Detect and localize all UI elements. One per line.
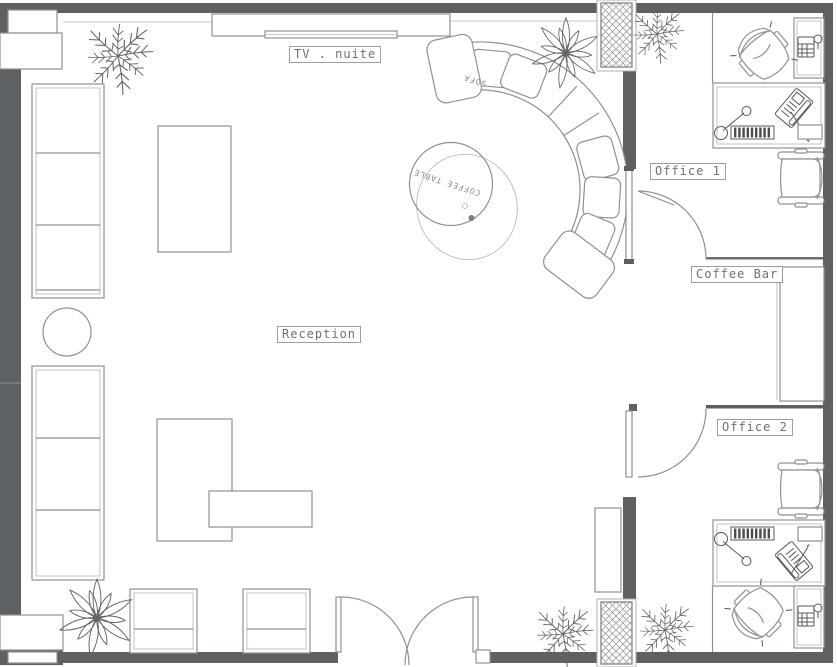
wall-sofa-lower [32,366,104,580]
exterior-walls [0,3,833,665]
table-detail [469,215,475,221]
tv-console [212,14,450,38]
label-tv-unit: TV . nuite [289,46,381,63]
door-swing-arc [638,409,706,477]
keyboard-icon [731,527,774,540]
door-swing-arc [341,597,409,665]
glass-partition [626,170,632,262]
side-chair [778,460,824,518]
office1-door [624,166,706,264]
partition-office2 [706,405,823,409]
sofa-cushion [583,176,621,218]
office1-desk [713,83,825,148]
side-chair [778,149,824,207]
door-leaf-right [473,597,478,652]
office1 [713,13,826,207]
fern-plant-top-right [632,9,684,64]
door-leaf-left [336,597,341,652]
door-leaf [626,411,632,477]
window-top-left [0,10,62,69]
label-reception: Reception [277,326,361,343]
label-office1: Office 1 [650,163,726,180]
equipment-cabinet [794,18,824,78]
paper-tray [798,527,822,541]
task-chair [727,17,802,92]
equipment-cabinet [794,586,824,648]
column-bottom [597,599,636,667]
door-swing-arc [405,597,473,665]
office2-desk [713,520,825,586]
display-table-3 [209,491,312,527]
round-side-table [43,308,91,356]
paper-tray [798,125,822,139]
palm-plant-bottom-left [59,579,133,657]
display-table-1 [158,126,231,252]
window-bottom-left [0,615,63,663]
floor-plan-drawing [0,0,837,667]
side-cabinet [595,508,621,592]
wall-sofa-upper [32,84,104,298]
armchair-1 [130,589,197,653]
office2 [713,460,826,652]
door-swing-arc [638,191,706,259]
office2-door [626,409,706,477]
partition-office1 [706,257,823,260]
keyboard-icon [731,126,774,139]
coffee-bar-counter [777,267,824,401]
entrance-double-door [336,597,490,665]
floor-plan: TV . nuite Reception Office 1 Coffee Bar… [0,0,837,667]
round-coffee-table [402,140,532,274]
label-coffee-bar: Coffee Bar [691,266,783,283]
armchair-2 [243,589,310,653]
column-top [597,0,636,71]
label-office2: Office 2 [717,419,793,436]
